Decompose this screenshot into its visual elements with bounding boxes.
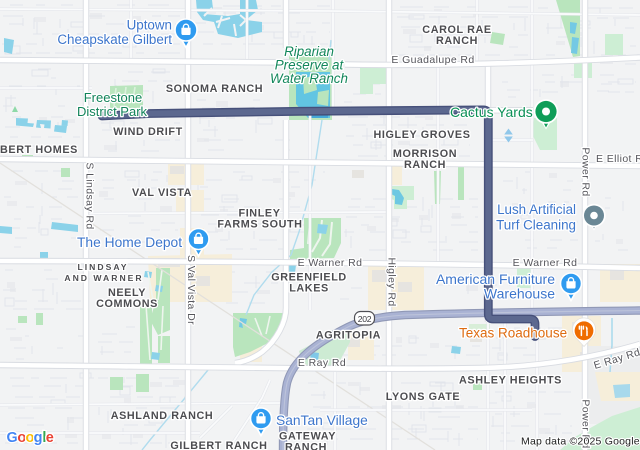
svg-text:ASHLAND RANCH: ASHLAND RANCH [111,410,214,422]
svg-text:e: e [46,430,54,446]
svg-text:RANCH: RANCH [404,159,446,171]
svg-text:Texas Roadhouse: Texas Roadhouse [459,326,567,341]
svg-text:COMMONS: COMMONS [96,298,158,310]
svg-text:S Lindsay Rd: S Lindsay Rd [84,162,96,229]
svg-text:E Warner Rd: E Warner Rd [298,257,363,269]
svg-text:FARMS SOUTH: FARMS SOUTH [217,219,302,231]
svg-text:g: g [34,430,43,446]
svg-text:RANCH: RANCH [285,442,327,450]
svg-text:Uptown: Uptown [127,18,172,33]
svg-text:E Elliot Rd: E Elliot Rd [596,153,640,165]
svg-text:Map data ©2025 Google: Map data ©2025 Google [521,436,640,448]
svg-text:LYONS GATE: LYONS GATE [386,391,460,403]
svg-text:RANCH: RANCH [436,35,478,47]
svg-text:SONOMA RANCH: SONOMA RANCH [166,83,263,95]
svg-text:Water Ranch: Water Ranch [270,71,348,86]
svg-text:WIND DRIFT: WIND DRIFT [113,126,183,138]
svg-text:HIGLEY GROVES: HIGLEY GROVES [374,129,471,141]
svg-text:202: 202 [358,314,372,324]
svg-text:LINDSAY: LINDSAY [78,262,129,272]
svg-text:Warehouse: Warehouse [484,286,555,302]
svg-text:AND WARNER: AND WARNER [64,273,143,283]
svg-text:GILBERT RANCH: GILBERT RANCH [170,440,267,450]
svg-text:SanTan Village: SanTan Village [276,413,368,428]
svg-text:BERT HOMES: BERT HOMES [0,144,78,156]
svg-text:LAKES: LAKES [289,283,329,295]
svg-text:Higley Rd: Higley Rd [386,257,398,306]
svg-text:E Guadalupe Rd: E Guadalupe Rd [391,54,474,66]
svg-text:S Val Vista Dr: S Val Vista Dr [185,255,197,325]
svg-text:The Home Depot: The Home Depot [77,235,182,250]
svg-text:Freestone: Freestone [84,90,143,105]
svg-text:E Ray Rd: E Ray Rd [298,357,346,369]
svg-text:Turf Cleaning: Turf Cleaning [496,218,576,233]
svg-text:District Park: District Park [77,104,148,119]
svg-text:G: G [7,430,18,446]
svg-text:E Warner Rd: E Warner Rd [513,257,578,269]
svg-text:ASHLEY HEIGHTS: ASHLEY HEIGHTS [459,375,562,387]
svg-text:Cactus Yards: Cactus Yards [450,104,533,120]
svg-text:VAL VISTA: VAL VISTA [132,187,192,199]
svg-text:Lush Artificial: Lush Artificial [497,202,576,217]
svg-text:Cheapskate Gilbert: Cheapskate Gilbert [57,32,172,47]
svg-text:Power Rd: Power Rd [580,147,592,196]
svg-text:AGRITOPIA: AGRITOPIA [316,330,381,342]
